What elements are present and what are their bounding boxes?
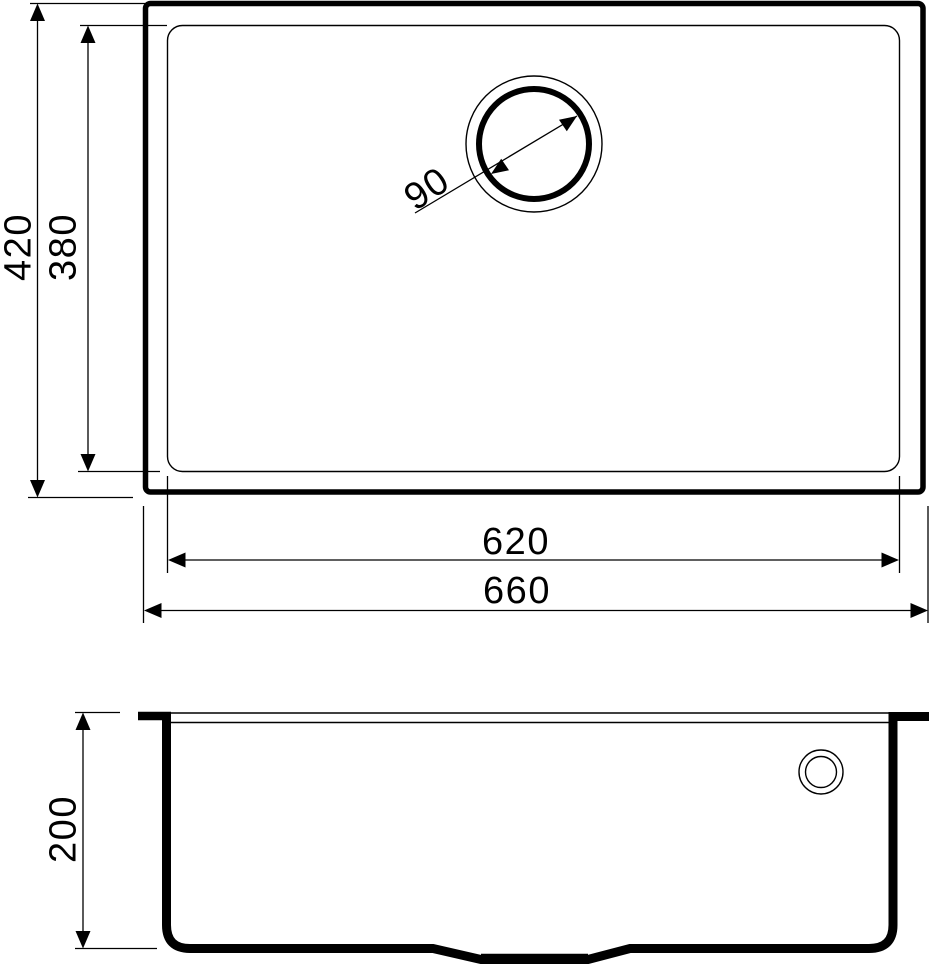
- dim-620-arrow-right: [882, 553, 900, 568]
- dim-660-arrow-left: [144, 603, 162, 618]
- sink-outer-outline: [146, 4, 924, 493]
- dim-200-arrow-bottom: [76, 931, 91, 949]
- dim-90-arrow-upper: [559, 116, 577, 131]
- dim-bowl-depth: 380: [43, 26, 168, 472]
- section-bowl-outline: [167, 712, 894, 960]
- dim-420-arrow-top: [30, 4, 45, 22]
- drain-outer-circle: [466, 76, 602, 212]
- dim-200-arrow-top: [76, 713, 91, 731]
- dim-380-arrow-bottom: [81, 454, 96, 472]
- dim-620-label: 620: [482, 521, 550, 563]
- dim-bowl-height: 200: [43, 713, 158, 949]
- dim-380-label: 380: [43, 213, 85, 281]
- technical-drawing-canvas: 90 420 380 620: [0, 0, 931, 964]
- dim-420-label: 420: [0, 213, 40, 281]
- section-drain-inner-circle: [806, 757, 837, 788]
- dim-420-arrow-bottom: [30, 480, 45, 498]
- sink-technical-drawing: 90 420 380 620: [0, 0, 931, 964]
- dim-620-arrow-left: [168, 553, 186, 568]
- dim-200-label: 200: [43, 795, 85, 863]
- dim-660-arrow-right: [911, 603, 929, 618]
- plan-view: 90 420 380 620: [0, 4, 928, 624]
- section-view: 200: [43, 712, 930, 960]
- drain-ring-circle: [479, 89, 589, 199]
- dim-90-label: 90: [397, 159, 458, 219]
- dim-380-arrow-top: [81, 26, 96, 44]
- sink-bowl-outline: [168, 26, 900, 472]
- dim-660-label: 660: [483, 570, 551, 612]
